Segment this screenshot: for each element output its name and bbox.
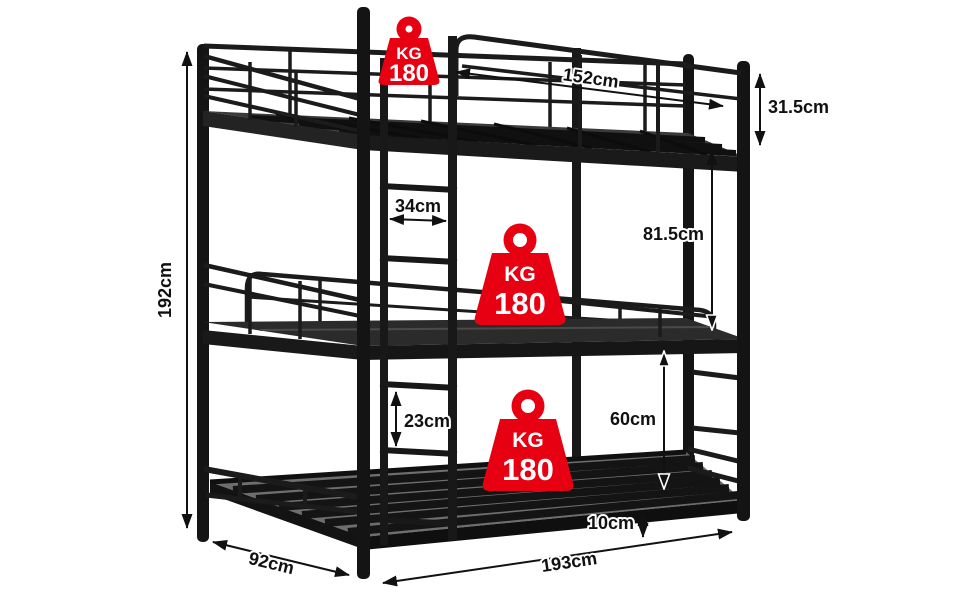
dimension-ladder-width: 34cm xyxy=(390,196,446,221)
diagram-canvas: KG 180 KG 180 KG 180 192cm 152cm 31.5cm … xyxy=(0,0,970,600)
weight-icon-hole xyxy=(513,233,527,247)
badge-unit-label: KG xyxy=(512,429,544,452)
dim-label-overall-length: 193cm xyxy=(540,548,598,576)
bed-frame xyxy=(197,7,750,579)
badge-unit-label: KG xyxy=(504,263,536,286)
dim-label-bed-depth: 92cm xyxy=(247,548,296,578)
weight-badge-middle: KG 180 xyxy=(475,224,566,326)
dim-label-rung-spacing: 23cm xyxy=(404,411,450,431)
badge-value-label: 180 xyxy=(494,286,546,321)
post-front-right xyxy=(737,61,750,521)
dim-label-middle-bottom-clearance: 60cm xyxy=(610,409,656,429)
dim-label-top-middle-clearance: 81.5cm xyxy=(643,224,704,244)
badge-value-label: 180 xyxy=(502,452,554,487)
weight-icon-hole xyxy=(521,399,535,413)
dimension-bed-depth: 92cm xyxy=(213,542,349,578)
post-back-right xyxy=(683,54,694,504)
dim-label-ladder-width: 34cm xyxy=(395,196,441,216)
dim-label-top-bed-length: 152cm xyxy=(562,64,620,92)
dim-label-bottom-bed-height: 10cm xyxy=(588,513,634,533)
bunk-bed-dimension-diagram: KG 180 KG 180 KG 180 192cm 152cm 31.5cm … xyxy=(0,0,970,600)
dimension-guardrail-height: 31.5cm xyxy=(760,74,829,145)
weight-badge-top: KG 180 xyxy=(379,17,440,88)
weight-icon-hole xyxy=(406,26,413,33)
dim-label-guardrail-height: 31.5cm xyxy=(768,97,829,117)
dimension-top-middle-clearance: 81.5cm xyxy=(643,151,712,329)
weight-badge-bottom: KG 180 xyxy=(483,390,574,492)
dim-label-overall-height: 192cm xyxy=(155,262,175,318)
post-front-left xyxy=(357,7,370,579)
top-bunk-deck xyxy=(203,111,745,172)
dimension-rung-spacing: 23cm xyxy=(396,392,450,446)
dimension-overall-height: 192cm xyxy=(155,52,187,528)
badge-value-label: 180 xyxy=(389,60,429,87)
